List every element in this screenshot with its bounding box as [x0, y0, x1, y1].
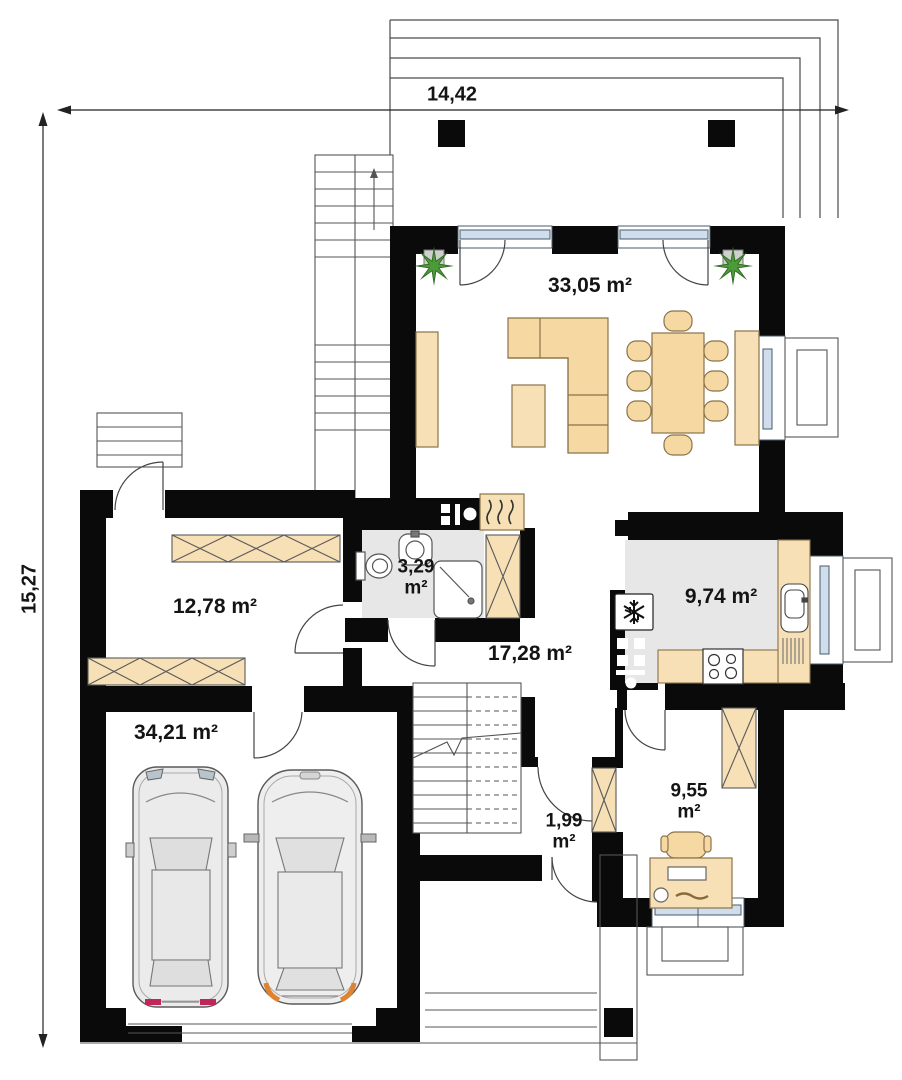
toilet: [356, 552, 392, 580]
plant-icon: [414, 246, 454, 286]
office-wardrobe: [722, 708, 756, 788]
entrance-door-swing: [552, 857, 597, 902]
office-area-value: 9,55: [671, 781, 708, 802]
desk: [650, 858, 732, 908]
office-door-swing: [625, 710, 665, 750]
bedroom-wardrobe-bottom: [88, 658, 245, 685]
vestibule-area-value: 1,99: [546, 811, 583, 832]
fridge-snowflake-icon: [615, 594, 653, 630]
shower: [434, 561, 482, 618]
bathroom-area-unit: m²: [398, 578, 435, 599]
porch-column: [604, 1008, 633, 1037]
cooktop: [703, 649, 743, 684]
desk-chair: [661, 832, 711, 858]
vestibule-wardrobe: [592, 768, 616, 832]
room-label-hall: 17,28 m²: [488, 642, 572, 666]
terrace-column: [708, 120, 735, 147]
side-entrance-steps: [97, 413, 182, 467]
kitchen-window-right: [810, 556, 843, 664]
dimension-height-label: 15,27: [19, 564, 42, 614]
floor-plan-drawing: [0, 0, 902, 1080]
office-furniture: [650, 832, 732, 908]
office-area-unit: m²: [671, 802, 708, 823]
garage-door-swing: [254, 712, 302, 758]
exterior-staircase: [315, 155, 393, 507]
heater-flue-icon: [480, 494, 524, 530]
tv-cabinet: [416, 332, 438, 447]
bedroom-wardrobe-top: [172, 535, 340, 562]
plant-icon: [713, 246, 753, 286]
hall-wardrobe: [486, 535, 520, 618]
room-label-garage: 34,21 m²: [134, 721, 218, 745]
room-label-vestibule: 1,99 m²: [546, 811, 583, 854]
living-room-furniture: [416, 311, 759, 455]
room-label-office: 9,55 m²: [671, 781, 708, 824]
floor-plan: 14,42 15,27 33,05 m² 12,78 m² 17,28 m² 9…: [0, 0, 902, 1080]
coffee-table: [512, 385, 545, 447]
dimension-width-label: 14,42: [427, 84, 477, 107]
room-label-bedroom: 12,78 m²: [173, 595, 257, 619]
side-entrance-door-swing: [115, 462, 163, 510]
bathroom-door-swing: [388, 620, 435, 666]
terrace-column: [438, 120, 465, 147]
car-left: [126, 767, 236, 1007]
dimension-line-horizontal: [57, 106, 849, 115]
vestibule-area-unit: m²: [546, 832, 583, 853]
terrace-door-window-right: [618, 226, 710, 248]
car-right: [244, 770, 376, 1004]
dining-table: [652, 333, 704, 433]
sideboard: [735, 331, 759, 445]
bathroom-area-value: 3,29: [398, 557, 435, 578]
living-room-window-right: [759, 336, 785, 440]
room-label-bathroom: 3,29 m²: [398, 557, 435, 600]
interior-staircase: [413, 683, 521, 833]
room-label-living-dining: 33,05 m²: [548, 274, 632, 298]
bedroom-door-swing: [295, 605, 343, 653]
room-label-kitchen: 9,74 m²: [685, 585, 757, 609]
